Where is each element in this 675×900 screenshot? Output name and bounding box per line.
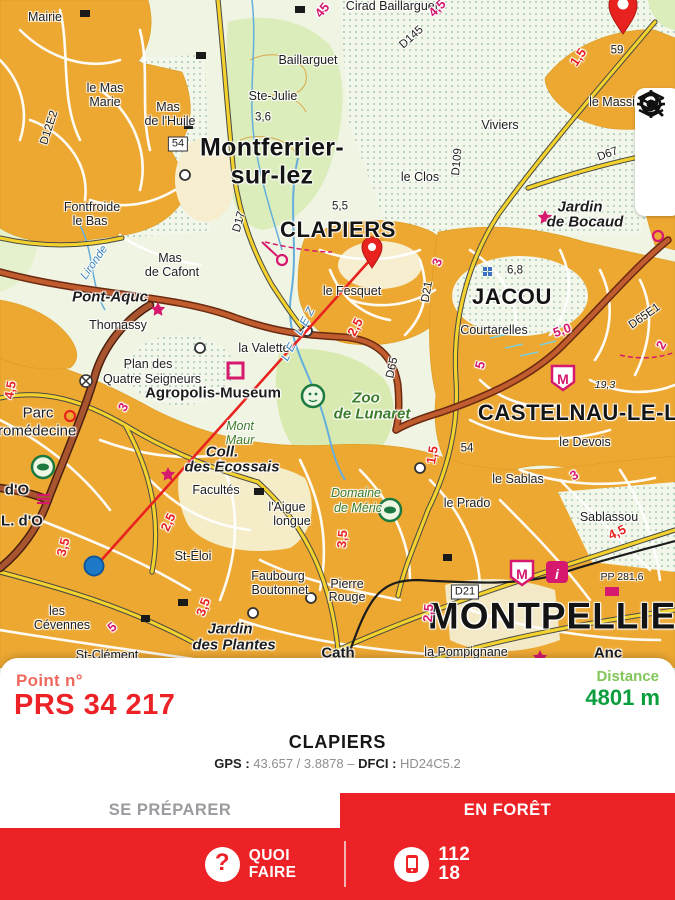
app-screen: MairieCirad BaillarguetBaillarguetSte-Ju… [0, 0, 675, 900]
phone-icon [394, 847, 429, 882]
map-view[interactable]: MairieCirad BaillarguetBaillarguetSte-Ju… [0, 0, 675, 668]
map-controls [635, 88, 675, 216]
quoi-faire-line2: FAIRE [249, 864, 297, 881]
point-number-label: Point n° [16, 671, 83, 691]
quoi-faire-button[interactable]: ? QUOI FAIRE [199, 846, 303, 883]
tab-bar: SE PRÉPARER EN FORÊT [0, 793, 675, 828]
tab-en-foret[interactable]: EN FORÊT [340, 793, 675, 828]
gps-dfci-line: GPS : 43.657 / 3.8878 – DFCI : HD24C5.2 [0, 756, 675, 771]
map-canvas [0, 0, 675, 668]
emergency-number-18: 18 [438, 864, 460, 883]
distance-label: Distance [596, 668, 659, 685]
separator: – [347, 756, 354, 771]
locate-icon [635, 88, 667, 120]
bottom-action-bar: ? QUOI FAIRE 112 18 [0, 828, 675, 900]
point-number-value: PRS 34 217 [14, 689, 175, 722]
dfci-value: HD24C5.2 [400, 756, 461, 771]
gps-value: 43.657 / 3.8878 [253, 756, 343, 771]
locate-button[interactable] [637, 176, 675, 214]
quoi-faire-line1: QUOI [249, 847, 290, 864]
gps-label: GPS : [214, 756, 249, 771]
info-panel: Point n° PRS 34 217 Distance 4801 m CLAP… [0, 658, 675, 900]
emergency-number-112: 112 [438, 845, 470, 864]
bottom-bar-divider [344, 841, 346, 887]
distance-value: 4801 m [585, 685, 660, 711]
tab-se-preparer[interactable]: SE PRÉPARER [0, 793, 340, 828]
dfci-label: DFCI : [358, 756, 396, 771]
emergency-call-button[interactable]: 112 18 [388, 844, 476, 884]
place-name: CLAPIERS [0, 732, 675, 753]
layers-button[interactable] [637, 133, 675, 171]
current-location-dot [85, 557, 104, 576]
question-icon: ? [205, 847, 240, 882]
